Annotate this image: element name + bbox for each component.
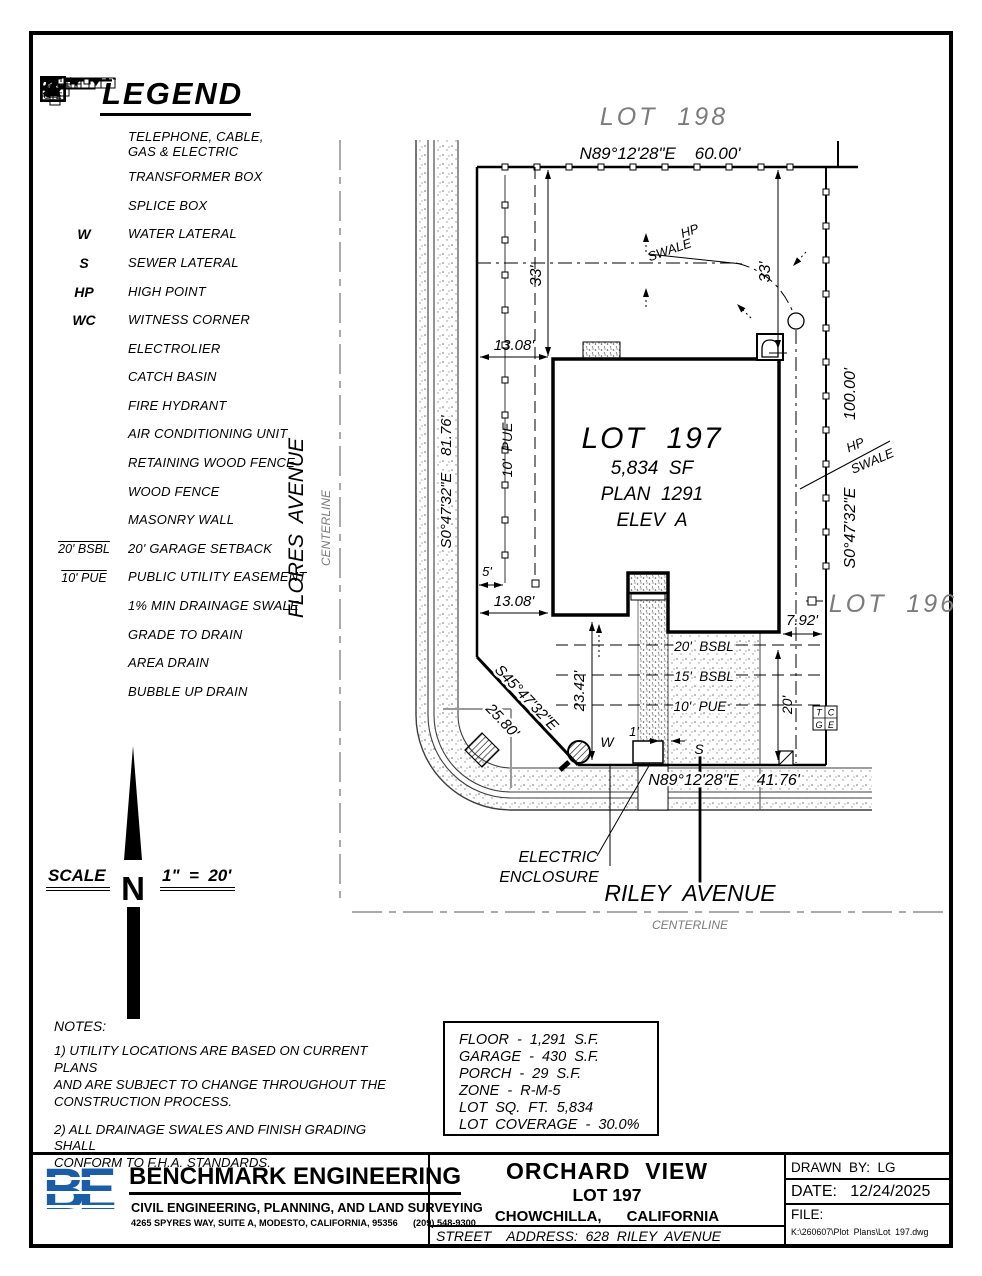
water-lateral-label: W bbox=[600, 734, 615, 750]
legend-item: W WATER LATERAL bbox=[40, 220, 370, 249]
dim-1308-bottom: 13.08' bbox=[494, 593, 536, 610]
dim-2342: 23.42' bbox=[571, 670, 588, 713]
east-boundary-length: 100.00' bbox=[842, 367, 859, 420]
legend-item-label: 20' GARAGE SETBACK bbox=[128, 542, 272, 556]
legend-panel: LEGEND T C G E TELEPHONE, CABLE, GAS & E… bbox=[40, 76, 370, 706]
legend-item: WC WITNESS CORNER bbox=[40, 306, 370, 335]
legend-item: HP HIGH POINT bbox=[40, 277, 370, 306]
info-lot-sqft: LOT SQ. FT. 5,834 bbox=[459, 1100, 657, 1117]
lot-197-title: LOT 197 bbox=[581, 422, 722, 455]
lot-198-label: LOT 198 bbox=[600, 103, 728, 131]
legend-item: S SEWER LATERAL bbox=[40, 249, 370, 278]
area-drain bbox=[788, 313, 804, 329]
project-lot: LOT 197 bbox=[430, 1185, 784, 1206]
legend-item: 20' BSBL 20' GARAGE SETBACK bbox=[40, 535, 370, 564]
title-block-project-cell: ORCHARD VIEW LOT 197 CHOWCHILLA, CALIFOR… bbox=[428, 1155, 786, 1248]
legend-title: LEGEND bbox=[100, 76, 251, 116]
east-boundary-bearing: S0°47'32"E bbox=[842, 487, 859, 568]
legend-item-label: GRADE TO DRAIN bbox=[128, 628, 243, 642]
company-address: 4265 SPYRES WAY, SUITE A, MODESTO, CALIF… bbox=[131, 1218, 476, 1228]
legend-item-label: CATCH BASIN bbox=[128, 370, 217, 384]
info-zone: ZONE - R-M-5 bbox=[459, 1083, 657, 1100]
legend-item: WOOD FENCE bbox=[40, 478, 370, 507]
bsbl-15-label: 15' BSBL bbox=[674, 669, 734, 684]
legend-item-label: SPLICE BOX bbox=[128, 199, 207, 213]
ac-unit bbox=[757, 334, 783, 360]
riley-centerline-label: CENTERLINE bbox=[652, 918, 729, 932]
title-block-company-cell: BE BENCHMARK ENGINEERING CIVIL ENGINEERI… bbox=[33, 1155, 428, 1248]
dim-33-right: 33' bbox=[757, 261, 774, 283]
street-address: STREET ADDRESS: 628 RILEY AVENUE bbox=[430, 1225, 784, 1248]
legend-item: 1% MIN DRAINAGE SWALE bbox=[40, 592, 370, 621]
info-floor: FLOOR - 1,291 S.F. bbox=[459, 1032, 657, 1049]
logo-stripe bbox=[41, 1177, 121, 1180]
scale-value: 1" = 20' bbox=[160, 866, 235, 891]
north-arrow-n: N bbox=[121, 870, 145, 907]
info-garage: GARAGE - 430 S.F. bbox=[459, 1049, 657, 1066]
legend-item-label: SEWER LATERAL bbox=[128, 256, 239, 270]
legend-item: AREA DRAIN bbox=[40, 649, 370, 678]
garage-setback-symbol: 20' BSBL bbox=[40, 542, 128, 556]
tcge-box: T C G E bbox=[813, 706, 837, 730]
legend-item: CATCH BASIN bbox=[40, 363, 370, 392]
dim-1: 1' bbox=[629, 724, 639, 739]
high-point-symbol: HP bbox=[40, 284, 128, 300]
legend-item: BUBBLE UP DRAIN bbox=[40, 678, 370, 707]
lot-196-label: LOT 196 bbox=[829, 590, 957, 618]
legend-item: AIR CONDITIONING UNIT bbox=[40, 420, 370, 449]
sewer-lateral-symbol: S bbox=[40, 255, 128, 271]
legend-item: FIRE HYDRANT bbox=[40, 392, 370, 421]
bubble-up-drain bbox=[779, 751, 793, 765]
legend-item: 10' PUE PUBLIC UTILITY EASEMENT bbox=[40, 563, 370, 592]
legend-item-label: 1% MIN DRAINAGE SWALE bbox=[128, 599, 299, 613]
dim-33-left: 33' bbox=[528, 265, 545, 287]
legend-item: ELECTROLIER bbox=[40, 335, 370, 364]
notes-title: NOTES: bbox=[54, 1018, 404, 1034]
project-name: ORCHARD VIEW bbox=[430, 1158, 784, 1185]
hp-lower-label: HP bbox=[844, 434, 867, 455]
legend-item: RETAINING WOOD FENCE bbox=[40, 449, 370, 478]
legend-item-label: TRANSFORMER BOX bbox=[128, 170, 262, 184]
rear-pad bbox=[583, 342, 620, 359]
water-lateral-symbol: W bbox=[40, 226, 128, 242]
company-name: BENCHMARK ENGINEERING bbox=[129, 1163, 461, 1195]
legend-item-label: RETAINING WOOD FENCE bbox=[128, 456, 295, 470]
legend-item-label: ELECTROLIER bbox=[128, 342, 221, 356]
date: DATE: 12/24/2025 bbox=[786, 1180, 949, 1205]
tcge-e: E bbox=[828, 720, 835, 730]
electric-enclosure-label-1: ELECTRIC bbox=[518, 849, 598, 866]
legend-item: T C G E TELEPHONE, CABLE, GAS & ELECTRIC bbox=[40, 126, 370, 163]
title-block-meta-cell: DRAWN BY: LG DATE: 12/24/2025 FILE: K:\2… bbox=[786, 1155, 949, 1248]
electric-enclosure-label-2: ENCLOSURE bbox=[499, 869, 599, 886]
pue-10-label: 10' PUE bbox=[674, 699, 728, 714]
legend-item: TRANSFORMER BOX bbox=[40, 163, 370, 192]
info-porch: PORCH - 29 S.F. bbox=[459, 1066, 657, 1083]
sewer-lateral-label: S bbox=[694, 741, 704, 757]
legend-item-label: AIR CONDITIONING UNIT bbox=[128, 427, 287, 441]
info-lot-coverage: LOT COVERAGE - 30.0% bbox=[459, 1117, 657, 1134]
dim-1308-top: 13.08' bbox=[494, 337, 536, 354]
witness-corner-icon: WC bbox=[40, 313, 128, 327]
legend-item-label: FIRE HYDRANT bbox=[128, 399, 226, 413]
legend-item-label: HIGH POINT bbox=[128, 285, 206, 299]
witness-corner-symbol: WC bbox=[72, 313, 95, 327]
diagonal-boundary-length: 25.80' bbox=[482, 700, 524, 743]
lot-197-elev: ELEV A bbox=[616, 510, 687, 531]
north-boundary-bearing: N89°12'28"E 60.00' bbox=[579, 144, 741, 163]
pue-symbol: 10' PUE bbox=[40, 571, 128, 585]
legend-item-label: TELEPHONE, CABLE, GAS & ELECTRIC bbox=[128, 130, 264, 159]
swale-upper-label: SWALE bbox=[646, 235, 694, 264]
dim-792: 7.92' bbox=[786, 612, 819, 629]
legend-item: GRADE TO DRAIN bbox=[40, 621, 370, 650]
legend-item-label: MASONRY WALL bbox=[128, 513, 234, 527]
porch bbox=[628, 573, 668, 593]
south-boundary-bearing: N89°12'28"E 41.76' bbox=[648, 772, 801, 789]
west-boundary-bearing: S0°47'32"E 81.76' bbox=[438, 414, 455, 548]
riley-avenue-label: RILEY AVENUE bbox=[604, 880, 776, 906]
porch-step bbox=[631, 594, 665, 600]
lot-197-area: 5,834 SF bbox=[611, 458, 695, 479]
legend-item-label: PUBLIC UTILITY EASEMENT bbox=[128, 570, 306, 584]
north-arrow: N bbox=[121, 746, 145, 1019]
benchmark-logo: BE bbox=[43, 1161, 110, 1219]
logo-stripe bbox=[41, 1205, 121, 1208]
logo-stripe bbox=[41, 1191, 121, 1194]
legend-item: MASONRY WALL bbox=[40, 506, 370, 535]
legend-item-label: WATER LATERAL bbox=[128, 227, 237, 241]
title-block: BE BENCHMARK ENGINEERING CIVIL ENGINEERI… bbox=[33, 1152, 949, 1248]
legend-item-label: AREA DRAIN bbox=[128, 656, 209, 670]
file-path: K:\260607\Plot Plans\Lot 197.dwg bbox=[791, 1227, 949, 1237]
dim-20: 20' bbox=[779, 695, 795, 716]
drawn-by: DRAWN BY: LG bbox=[786, 1155, 949, 1180]
file-label: FILE: bbox=[791, 1207, 949, 1222]
dim-5: 5' bbox=[482, 564, 492, 579]
site-info-box: FLOOR - 1,291 S.F. GARAGE - 430 S.F. POR… bbox=[443, 1021, 659, 1136]
bsbl-20-label: 20' BSBL bbox=[673, 639, 734, 654]
pue-left-label: 10' PUE bbox=[499, 422, 515, 477]
plot-plan-sheet: T C G E LOT 198 LOT bbox=[0, 0, 982, 1276]
note-1: 1) UTILITY LOCATIONS ARE BASED ON CURREN… bbox=[54, 1043, 404, 1111]
legend-item-label: BUBBLE UP DRAIN bbox=[128, 685, 248, 699]
scale-label: SCALE bbox=[46, 866, 110, 891]
legend-item-label: WITNESS CORNER bbox=[128, 313, 250, 327]
legend-item-label: WOOD FENCE bbox=[128, 485, 220, 499]
tcge-g: G bbox=[815, 720, 822, 730]
legend-item: SPLICE BOX bbox=[40, 192, 370, 221]
lot-197-plan: PLAN 1291 bbox=[601, 484, 703, 505]
tcge-c: C bbox=[828, 708, 835, 718]
project-city: CHOWCHILLA, CALIFORNIA bbox=[430, 1208, 784, 1225]
